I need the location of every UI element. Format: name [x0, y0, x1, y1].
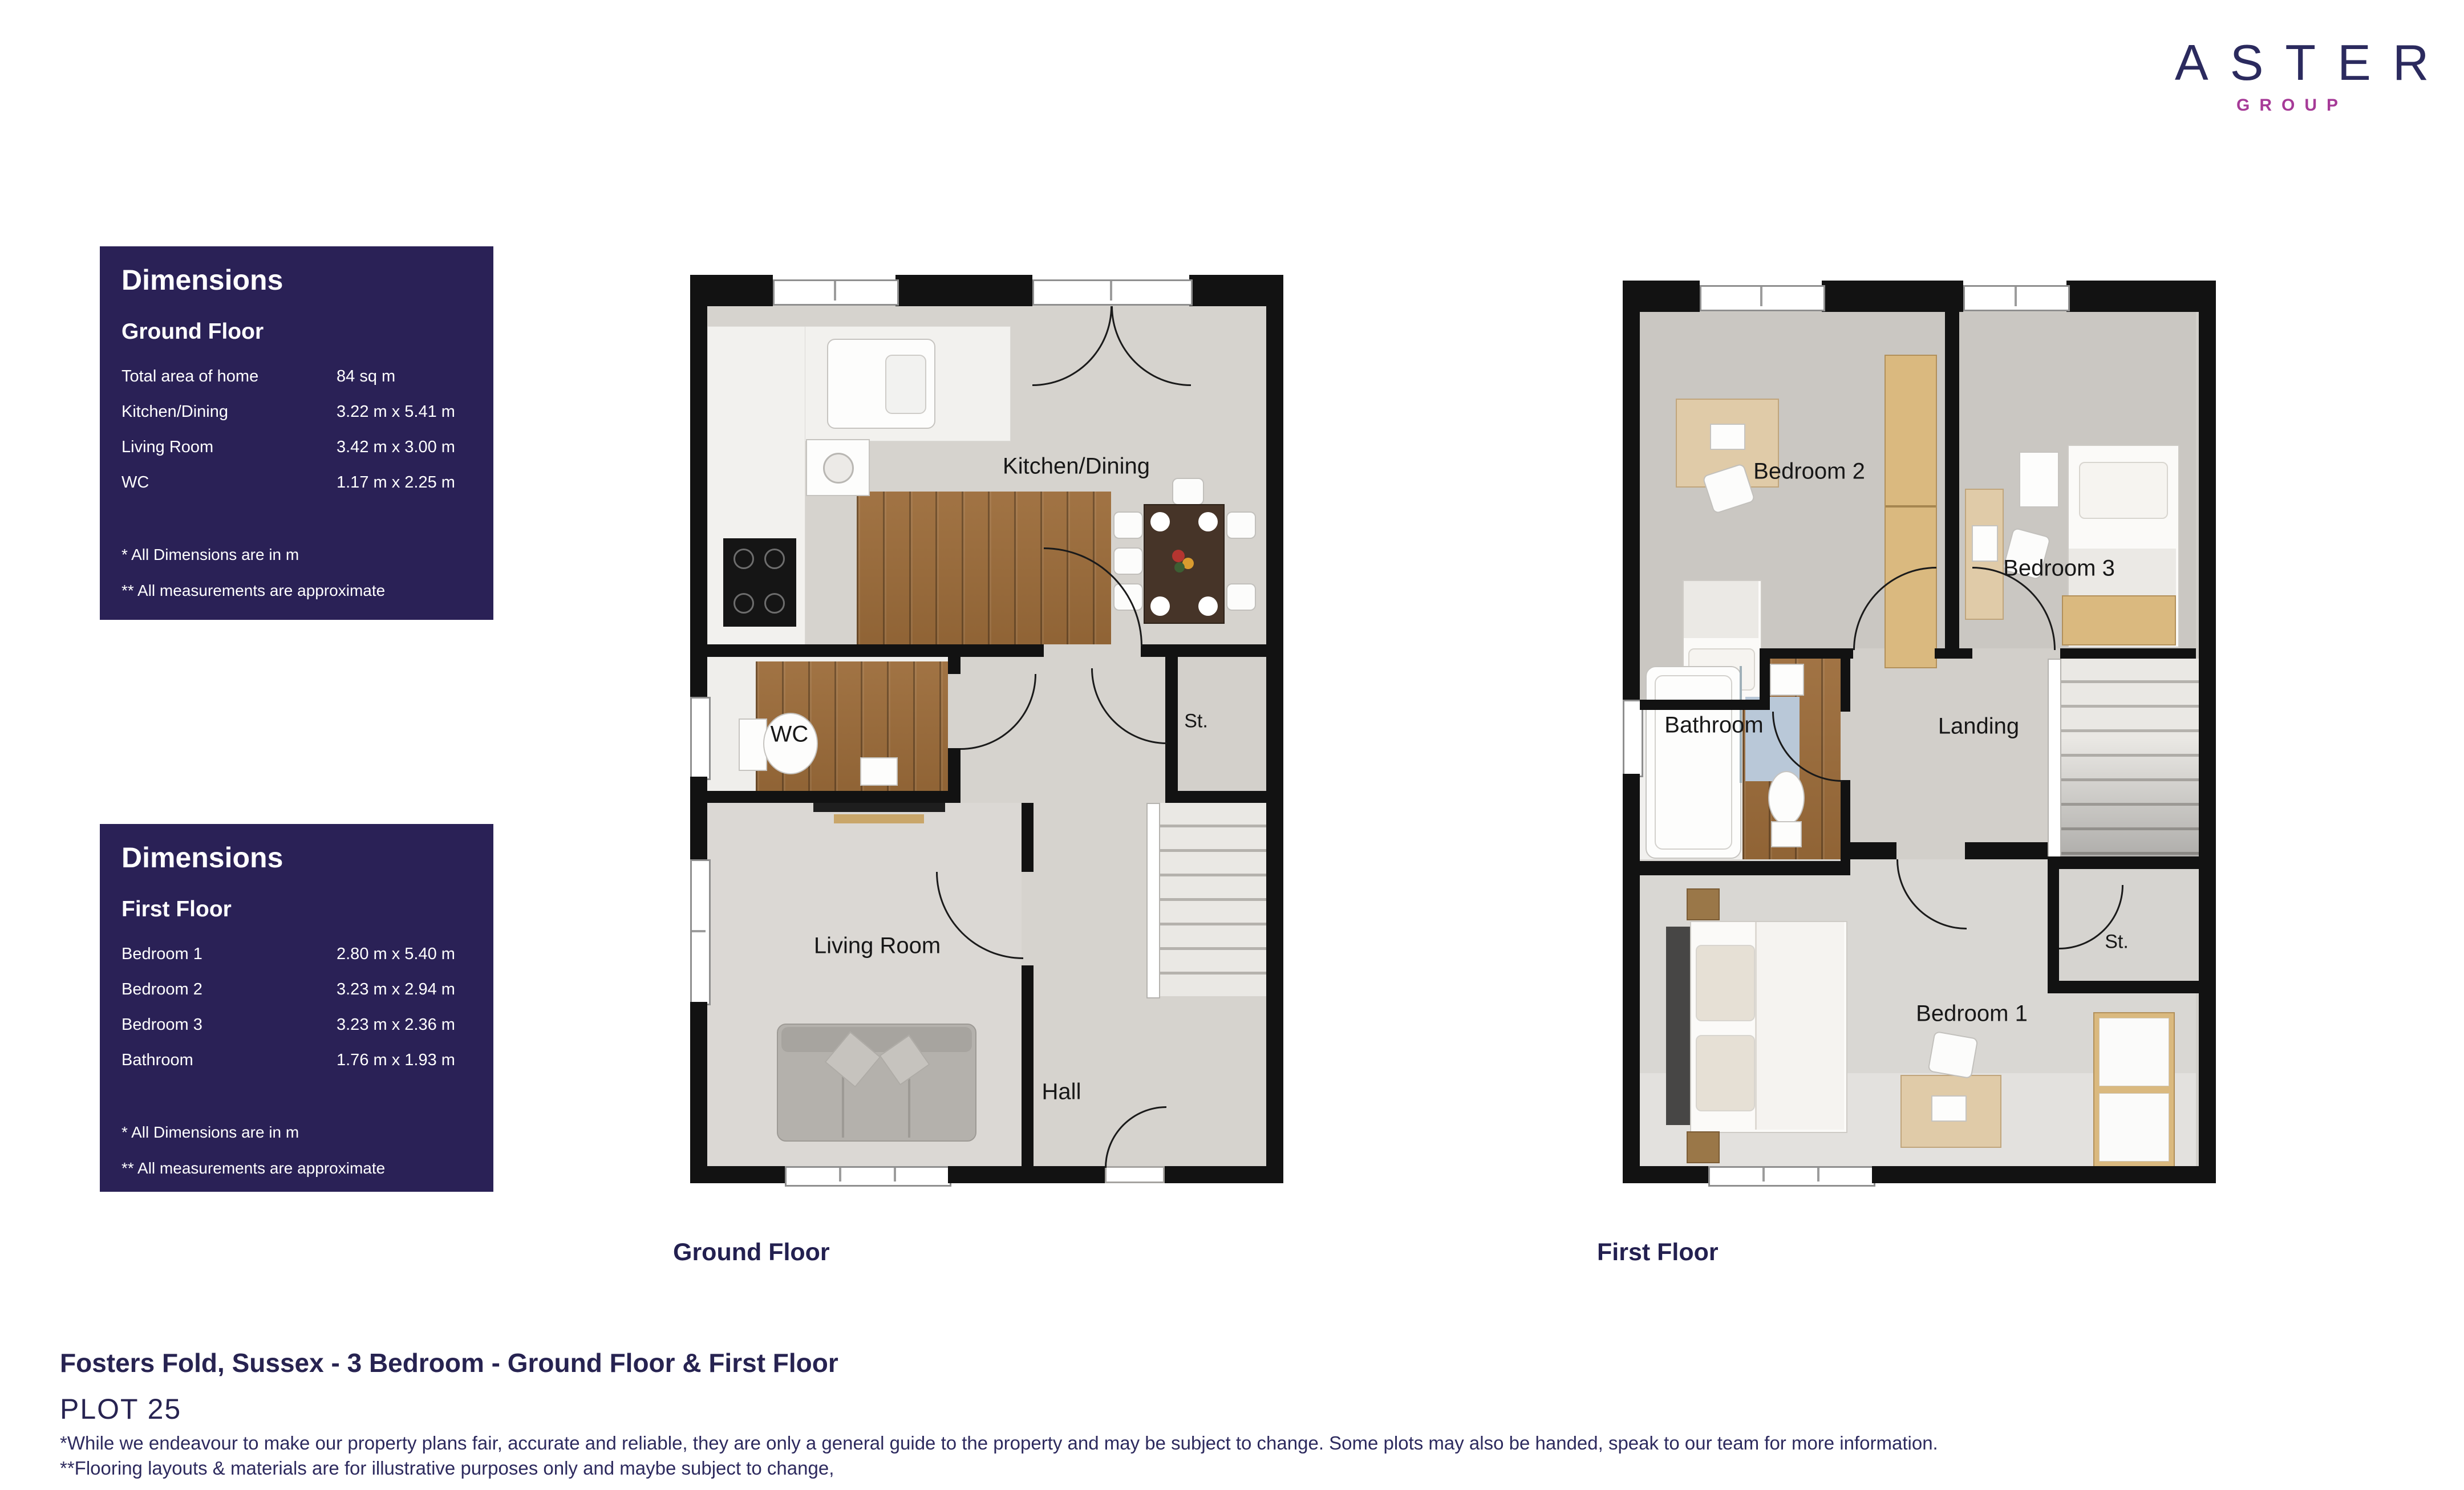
room-label-landing: Landing [1938, 714, 2019, 740]
room-label-bedroom1: Bedroom 1 [1916, 1001, 2028, 1027]
pillow [2079, 462, 2168, 519]
dimension-value: 84 sq m [337, 367, 395, 386]
wall [2060, 648, 2196, 659]
first-floor-caption: First Floor [1597, 1239, 1719, 1266]
aster-group-logo: ASTER GROUP [2153, 38, 2421, 115]
wardrobe-door [2099, 1093, 2169, 1162]
dimension-label: Bedroom 3 [121, 1016, 202, 1034]
dimension-row: Kitchen/Dining 3.22 m x 5.41 m [121, 403, 475, 421]
stair-railing [1146, 803, 1160, 998]
wall [1165, 657, 1178, 791]
wall [1760, 648, 1770, 710]
window-pane-divider [1762, 1168, 1765, 1182]
wall [690, 306, 707, 697]
ground-floor-plan: Kitchen/Dining St. WC Living Room Hall [690, 275, 1283, 1183]
room-label-storage: St. [1184, 711, 1208, 733]
window-pane-divider [1110, 281, 1112, 301]
room-label-living-room: Living Room [814, 933, 941, 959]
wall [948, 748, 961, 791]
window-pane-divider [834, 281, 836, 301]
dimension-value: 2.80 m x 5.40 m [337, 945, 455, 964]
laptop [1710, 424, 1745, 450]
burner [733, 593, 754, 614]
living-room-window [785, 1166, 951, 1187]
dimension-value: 1.76 m x 1.93 m [337, 1051, 455, 1070]
washing-machine-door [823, 453, 854, 484]
stairwell-shading [2059, 659, 2199, 856]
wall [895, 275, 1032, 306]
wall [2048, 856, 2199, 869]
wc-window [690, 697, 711, 780]
bedside-table [1687, 888, 1720, 920]
window-pane-divider [692, 930, 706, 932]
dining-chair [1172, 478, 1204, 505]
wardrobe-door [2099, 1018, 2169, 1086]
window-pane-divider [894, 1168, 896, 1182]
wall [1623, 774, 1640, 1183]
dimension-value: 3.42 m x 3.00 m [337, 438, 455, 457]
panel-note: * All Dimensions are in m [121, 546, 299, 564]
burner [764, 593, 785, 614]
kitchen-sink [827, 339, 935, 429]
dimension-label: Living Room [121, 438, 213, 456]
laptop [1972, 525, 1998, 562]
wardrobe [2093, 1012, 2175, 1167]
dining-table [1144, 504, 1225, 624]
staircase [1158, 803, 1266, 996]
bedroom2-window [1700, 285, 1825, 311]
dimension-value: 3.23 m x 2.36 m [337, 1016, 455, 1034]
wall [1022, 803, 1034, 872]
dimension-label: Total area of home [121, 367, 258, 385]
ground-floor-caption: Ground Floor [673, 1239, 830, 1266]
dimension-label: Bedroom 2 [121, 980, 202, 998]
duvet [1684, 581, 1758, 638]
dimension-label: Kitchen/Dining [121, 403, 228, 421]
toilet [1768, 771, 1805, 825]
dining-chair [1226, 511, 1256, 539]
dimension-value: 3.22 m x 5.41 m [337, 403, 455, 421]
dimension-label: Bedroom 1 [121, 945, 202, 963]
wall [2066, 281, 2216, 312]
page-title: Fosters Fold, Sussex - 3 Bedroom - Groun… [60, 1347, 838, 1378]
bedroom1-window [1708, 1166, 1875, 1187]
dimension-value: 3.23 m x 2.94 m [337, 980, 455, 999]
sofa [777, 1024, 976, 1142]
flowers [1174, 562, 1185, 573]
hob [723, 538, 796, 627]
bedside-table [2019, 452, 2059, 508]
wall [1623, 312, 1640, 700]
wall [1760, 648, 1853, 659]
dimension-row: Bedroom 1 2.80 m x 5.40 m [121, 945, 475, 964]
wall [690, 1166, 785, 1183]
dimension-label: WC [121, 473, 149, 492]
panel-floor-name: Ground Floor [121, 319, 264, 344]
bedside-table [1687, 1131, 1720, 1163]
dimensions-panel-ground-floor: Dimensions Ground Floor Total area of ho… [100, 246, 493, 620]
wall [707, 791, 961, 803]
panel-note: ** All measurements are approximate [121, 1159, 385, 1178]
room-label-storage: St. [2105, 931, 2129, 953]
plate [1150, 596, 1170, 616]
wall [1189, 275, 1283, 306]
dining-chair [1226, 583, 1256, 611]
washing-machine [806, 439, 870, 496]
bedroom3-window [1963, 285, 2070, 311]
wc-basin [860, 757, 898, 786]
dimension-label: Bathroom [121, 1051, 193, 1069]
window-pane-divider [1760, 287, 1762, 306]
wall [1841, 780, 1850, 861]
wardrobe-seam [1886, 505, 1936, 508]
burner [733, 549, 754, 569]
dining-chair [1113, 547, 1143, 575]
room-label-hall: Hall [1042, 1079, 1081, 1105]
plate [1150, 512, 1170, 531]
first-floor-plan: Bedroom 2 Bedroom 3 Bathroom Landing St.… [1623, 281, 2216, 1183]
tv-shelf [834, 814, 924, 823]
wall [1165, 1166, 1283, 1183]
pillow [1696, 945, 1755, 1021]
dining-chair [1113, 511, 1143, 539]
wall [1965, 842, 2048, 859]
sofa-back [781, 1027, 972, 1052]
wall [948, 1166, 1105, 1183]
window-pane-divider [2015, 287, 2017, 306]
bathroom-basin [1770, 664, 1804, 696]
wall [1623, 281, 1700, 312]
logo-brand-text: ASTER [2153, 38, 2421, 88]
wall [1872, 1166, 2216, 1183]
disclaimer-text: **Flooring layouts & materials are for i… [60, 1457, 834, 1479]
wall [948, 657, 961, 674]
panel-title: Dimensions [121, 841, 283, 874]
wall [1266, 306, 1283, 1183]
wall [1623, 1166, 1708, 1183]
room-label-wc: WC [771, 722, 809, 748]
toilet-cistern [1771, 821, 1802, 847]
panel-note: ** All measurements are approximate [121, 582, 385, 600]
plot-number: PLOT 25 [60, 1392, 181, 1426]
room-label-bedroom2: Bedroom 2 [1753, 459, 1865, 485]
panel-title: Dimensions [121, 263, 283, 297]
bathtub [1646, 666, 1741, 859]
wall [2199, 312, 2216, 1183]
wall [1841, 659, 1850, 712]
room-label-bathroom: Bathroom [1664, 713, 1763, 738]
room-label-kitchen-dining: Kitchen/Dining [1003, 454, 1150, 480]
pillow [1696, 1035, 1755, 1111]
burner [764, 549, 785, 569]
wall [1141, 644, 1266, 657]
dimension-value: 1.17 m x 2.25 m [337, 473, 455, 492]
panel-note: * All Dimensions are in m [121, 1123, 299, 1142]
duvet [1755, 922, 1844, 1130]
logo-group-text: GROUP [2153, 96, 2421, 115]
wall [1935, 648, 1972, 659]
wall [1640, 700, 1760, 710]
wall [690, 777, 707, 859]
window-pane-divider [839, 1168, 841, 1182]
dimension-row: Bedroom 2 3.23 m x 2.94 m [121, 980, 475, 999]
plate [1198, 512, 1218, 531]
wall [690, 275, 773, 306]
wall [1022, 965, 1034, 1167]
wall [2048, 869, 2059, 981]
dimension-row: WC 1.17 m x 2.25 m [121, 473, 475, 492]
wall [2048, 981, 2199, 993]
plate [1198, 596, 1218, 616]
double-bed [1690, 921, 1847, 1133]
room-label-bedroom3: Bedroom 3 [2003, 556, 2115, 582]
bathroom-window [1623, 700, 1643, 777]
wall [690, 1002, 707, 1183]
wall [1165, 791, 1266, 803]
storage-box [2062, 595, 2176, 645]
laptop [1931, 1095, 1967, 1122]
wall [1822, 281, 1963, 312]
window [773, 279, 899, 306]
stair-railing [2048, 659, 2061, 859]
wall [707, 644, 1044, 657]
living-room-window [690, 859, 711, 1005]
dimension-row: Living Room 3.42 m x 3.00 m [121, 438, 475, 457]
wall [1945, 312, 1959, 659]
page: ASTER GROUP Dimensions Ground Floor Tota… [0, 0, 2464, 1490]
desk [1900, 1075, 2001, 1148]
wall [1850, 842, 1896, 859]
wall [1640, 861, 1850, 875]
headboard [1666, 927, 1690, 1125]
dimension-row: Bedroom 3 3.23 m x 2.36 m [121, 1016, 475, 1034]
front-door-opening [1105, 1166, 1165, 1183]
window-pane-divider [1817, 1168, 1819, 1182]
dimension-row: Total area of home 84 sq m [121, 367, 475, 386]
dimension-row: Bathroom 1.76 m x 1.93 m [121, 1051, 475, 1070]
desk-chair [1927, 1031, 1978, 1079]
patio-door [1032, 279, 1193, 306]
dimensions-panel-first-floor: Dimensions First Floor Bedroom 1 2.80 m … [100, 824, 493, 1192]
sink-basin [885, 355, 926, 414]
panel-floor-name: First Floor [121, 897, 232, 922]
disclaimer-text: *While we endeavour to make our property… [60, 1432, 1938, 1454]
